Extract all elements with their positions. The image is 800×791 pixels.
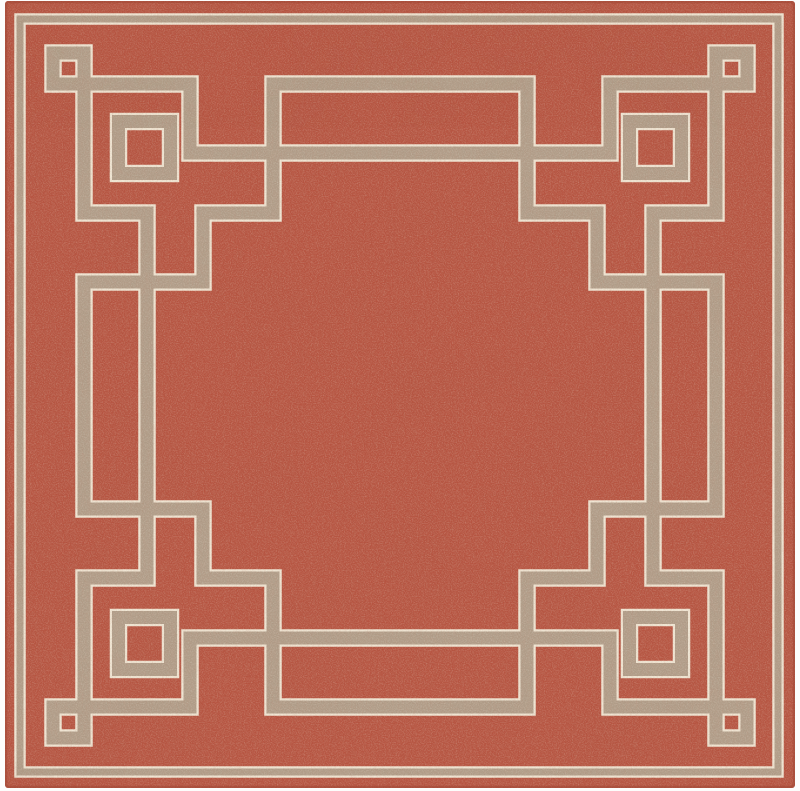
fabric-shading-texture: [5, 1, 795, 788]
rug-illustration: [0, 0, 800, 791]
rug-product-photo: [0, 0, 800, 791]
